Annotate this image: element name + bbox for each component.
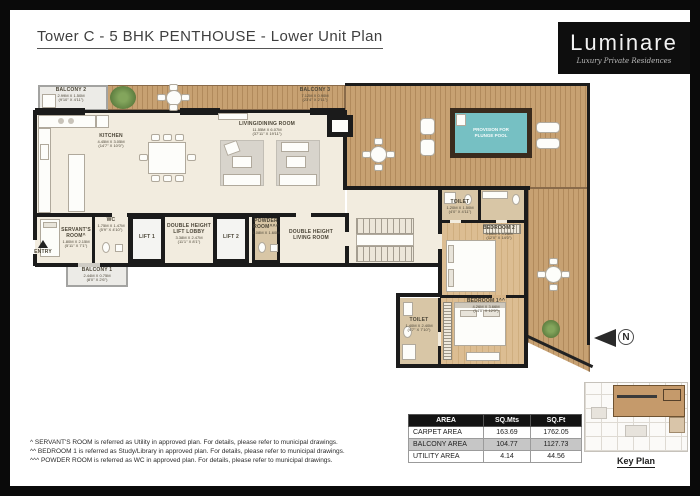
room-label-living: LIVING/DINING ROOM 11.55M X 6.07M (37'11… [228,122,306,137]
pillow [43,222,57,228]
area-sqft-cell: 44.56 [531,451,582,463]
area-sqft-cell: 1762.05 [531,427,582,439]
door-opening [296,213,311,217]
dining-chair [163,134,172,141]
deck-chair [181,94,190,101]
cooktop-burner [58,118,64,124]
pool-steps [456,114,466,126]
sink [270,244,278,252]
deck-chair [157,94,166,101]
deck-chair [374,138,383,145]
pool-label-line2: PLUNGE POOL [473,133,509,139]
wc-fixture [512,194,520,205]
room-dim-ft: (14'7" X 10'0") [85,144,137,149]
lounger [420,118,435,135]
room-label-balcony2: BALCONY 2 2.99M X 1.50M (9'10" X 4'11") [42,88,100,103]
pillow [448,269,454,287]
wall-segment [524,188,528,368]
cooktop-burner [68,118,74,124]
stairs-upper-flight [356,218,414,234]
dining-chair [175,175,184,182]
pillow [448,245,454,263]
shower [402,344,416,360]
wardrobe [443,302,452,360]
room-dim-ft: (8'0" X 2'6") [68,278,126,283]
room-label-lift2: LIFT 2 [213,235,249,241]
page-title: Tower C - 5 BHK PENTHOUSE - Lower Unit P… [37,28,383,49]
wall-segment [438,298,441,364]
wall-segment [310,108,345,115]
wall-segment [180,108,220,115]
north-compass: N [594,328,650,350]
door-opening [438,234,442,249]
dining-chair [163,175,172,182]
entry-arrow-icon [38,240,48,248]
key-plan-detail [663,389,681,401]
area-table-header-row: AREA SQ.Mts SQ.Ft [409,415,582,427]
plant [542,320,560,338]
room-dim-ft: (23'4" X 2'11") [288,98,342,103]
bedroom2-bed [446,240,496,292]
lounger [536,138,560,149]
wc-fixture [102,242,110,253]
room-label-balcony3: BALCONY 3 7.12M X 0.90M (23'4" X 2'11") [288,88,342,103]
room-dim-ft: (5'9" X 4'10") [94,228,128,233]
door-opening [438,332,441,346]
north-arrow-icon [594,329,616,347]
door-opening [345,232,349,246]
deck-chair [169,84,178,91]
deck-chair [537,271,546,278]
fridge [96,115,109,128]
room-dim-ft: (4'0" X 4'11") [442,210,478,215]
deck-chair [386,151,395,158]
area-table-row: CARPET AREA 163.69 1762.05 [409,427,582,439]
lounger [536,122,560,133]
sink [115,244,123,252]
dining-chair [175,134,184,141]
fireplace [327,115,353,137]
key-plan-label-text: Key Plan [617,456,655,468]
room-label-wc: WC 1.75M X 1.47M (5'9" X 4'10") [94,218,128,233]
deck-chair [362,151,371,158]
room-dim-ft: (4'7" X 7'10") [400,328,438,333]
brand-tagline: Luxury Private Residences [577,57,672,65]
room-name: ENTRY [30,250,56,256]
door-opening [450,220,461,223]
wall-segment [396,293,441,297]
deck-parapet [345,83,590,86]
area-sqmts-cell: 104.77 [484,439,531,451]
deck-chair [549,258,558,265]
wc-fixture [258,242,266,253]
deck-parapet [587,83,590,345]
pool-label: PROVISION FOR PLUNGE POOL [473,127,509,139]
room-name: LIFT 2 [213,235,249,241]
kitchen-sink [40,144,49,160]
loveseat [281,142,309,152]
fireplace-inner [332,120,348,132]
room-name: LIVING ROOM [282,236,340,242]
footnote: ^ SERVANT'S ROOM is referred as Utility … [30,438,400,447]
room-dim-ft: (5'11" X 7'1") [58,244,94,249]
brand-name: Luminare [570,32,678,54]
room-label-toilet2: TOILET 1.20M X 1.50M (4'0" X 4'11") [442,200,478,215]
area-name-cell: BALCONY AREA [409,439,484,451]
area-name-cell: CARPET AREA [409,427,484,439]
plan-sheet: Tower C - 5 BHK PENTHOUSE - Lower Unit P… [10,10,690,486]
deck-table [545,266,562,283]
key-plan-drawing [584,382,688,452]
wall-segment [478,190,481,220]
key-plan-detail [591,407,607,419]
dining-chair [139,154,148,161]
footnote: ^^ BEDROOM 1 is referred as Study/Librar… [30,447,400,456]
kitchen-island [68,154,85,212]
coffee-table [286,156,306,168]
dresser [466,352,500,361]
deck-chair [549,284,558,291]
area-sqft-cell: 1127.73 [531,439,582,451]
room-dim-ft: (9'10" X 4'11") [42,98,100,103]
room-label-toilet1: TOILET 1.40M X 2.40M (4'7" X 7'10") [400,318,438,333]
key-plan-detail [617,395,657,398]
deck-chair [561,271,570,278]
area-name-cell: UTILITY AREA [409,451,484,463]
lounger [420,139,435,156]
room-dim-ft: (37'11" X 19'11") [228,132,306,137]
room-name: LIFT 1 [129,235,165,241]
deck-chair [374,164,383,171]
stairs-lower-flight [356,246,414,262]
area-table-header: SQ.Ft [531,415,582,427]
footnotes: ^ SERVANT'S ROOM is referred as Utility … [30,438,400,465]
area-table-row: BALCONY AREA 104.77 1127.73 [409,439,582,451]
coffee-table [232,156,252,168]
media-console [218,113,248,120]
wall-segment [35,108,85,115]
key-plan: Key Plan [584,382,690,474]
wall-segment [438,186,528,190]
deck-table [370,146,387,163]
area-sqmts-cell: 163.69 [484,427,531,439]
floor-plan: PROVISION FOR PLUNGE POOL [30,82,596,394]
key-plan-label: Key Plan [584,456,688,466]
entry-label: ENTRY [30,250,56,256]
room-label-balcony1: BALCONY 1 2.44M X 0.75M (8'0" X 2'6") [68,268,126,283]
area-table-row: UTILITY AREA 4.14 44.56 [409,451,582,463]
plant [110,86,136,109]
room-label-kitchen: KITCHEN 4.45M X 3.05M (14'7" X 10'0") [85,134,137,149]
room-dim-ft: (14'0" X 12'0") [460,309,512,314]
key-plan-detail [625,425,647,437]
kitchen-counter-top [38,115,96,128]
dining-chair [187,154,196,161]
deck-chair [169,104,178,111]
room-label-bedroom1: BEDROOM 1^^ 4.26M X 3.66M (14'0" X 12'0"… [460,299,512,314]
room-label-lift1: LIFT 1 [129,235,165,241]
room-label-servant: SERVANT'S ROOM^ 1.80M X 2.15M (5'11" X 7… [58,228,94,249]
room-dim-ft: (12'0" X 14'0") [474,236,524,241]
room-label-powder: POWDER ROOM^^^ 1.08M X 1.60M [250,219,282,235]
dining-chair [151,134,160,141]
area-sqmts-cell: 4.14 [484,451,531,463]
vanity [482,191,508,199]
vanity [403,302,413,316]
area-table-header: AREA [409,415,484,427]
page: { "header": { "title": "Tower C - 5 BHK … [0,0,700,496]
sofa [279,174,317,186]
key-plan-detail [669,417,685,433]
door-opening [496,220,507,223]
brand-logo: Luminare Luxury Private Residences [558,22,690,74]
stairs-landing [356,234,414,246]
room-dim-ft: (11'1" X 8'1") [167,240,211,245]
north-letter: N [618,329,634,345]
area-table-header: SQ.Mts [484,415,531,427]
room-label-dh-living: DOUBLE HEIGHT LIVING ROOM [282,230,340,242]
room-label-bedroom2: BEDROOM 2 3.66M X 4.26M (12'0" X 14'0") [474,226,524,241]
sofa [223,174,261,186]
wall-segment [396,364,528,368]
footnote: ^^^ POWDER ROOM is referred as WC in app… [30,456,400,465]
dining-table [148,142,186,174]
area-table: AREA SQ.Mts SQ.Ft CARPET AREA 163.69 176… [408,414,582,463]
room-dim-m: 1.08M X 1.60M [250,231,282,236]
kitchen-counter-left [38,128,51,213]
room-label-lift-lobby: DOUBLE HEIGHT LIFT LOBBY 3.38M X 2.47M (… [167,224,211,245]
dining-chair [151,175,160,182]
wall-segment [33,110,37,240]
